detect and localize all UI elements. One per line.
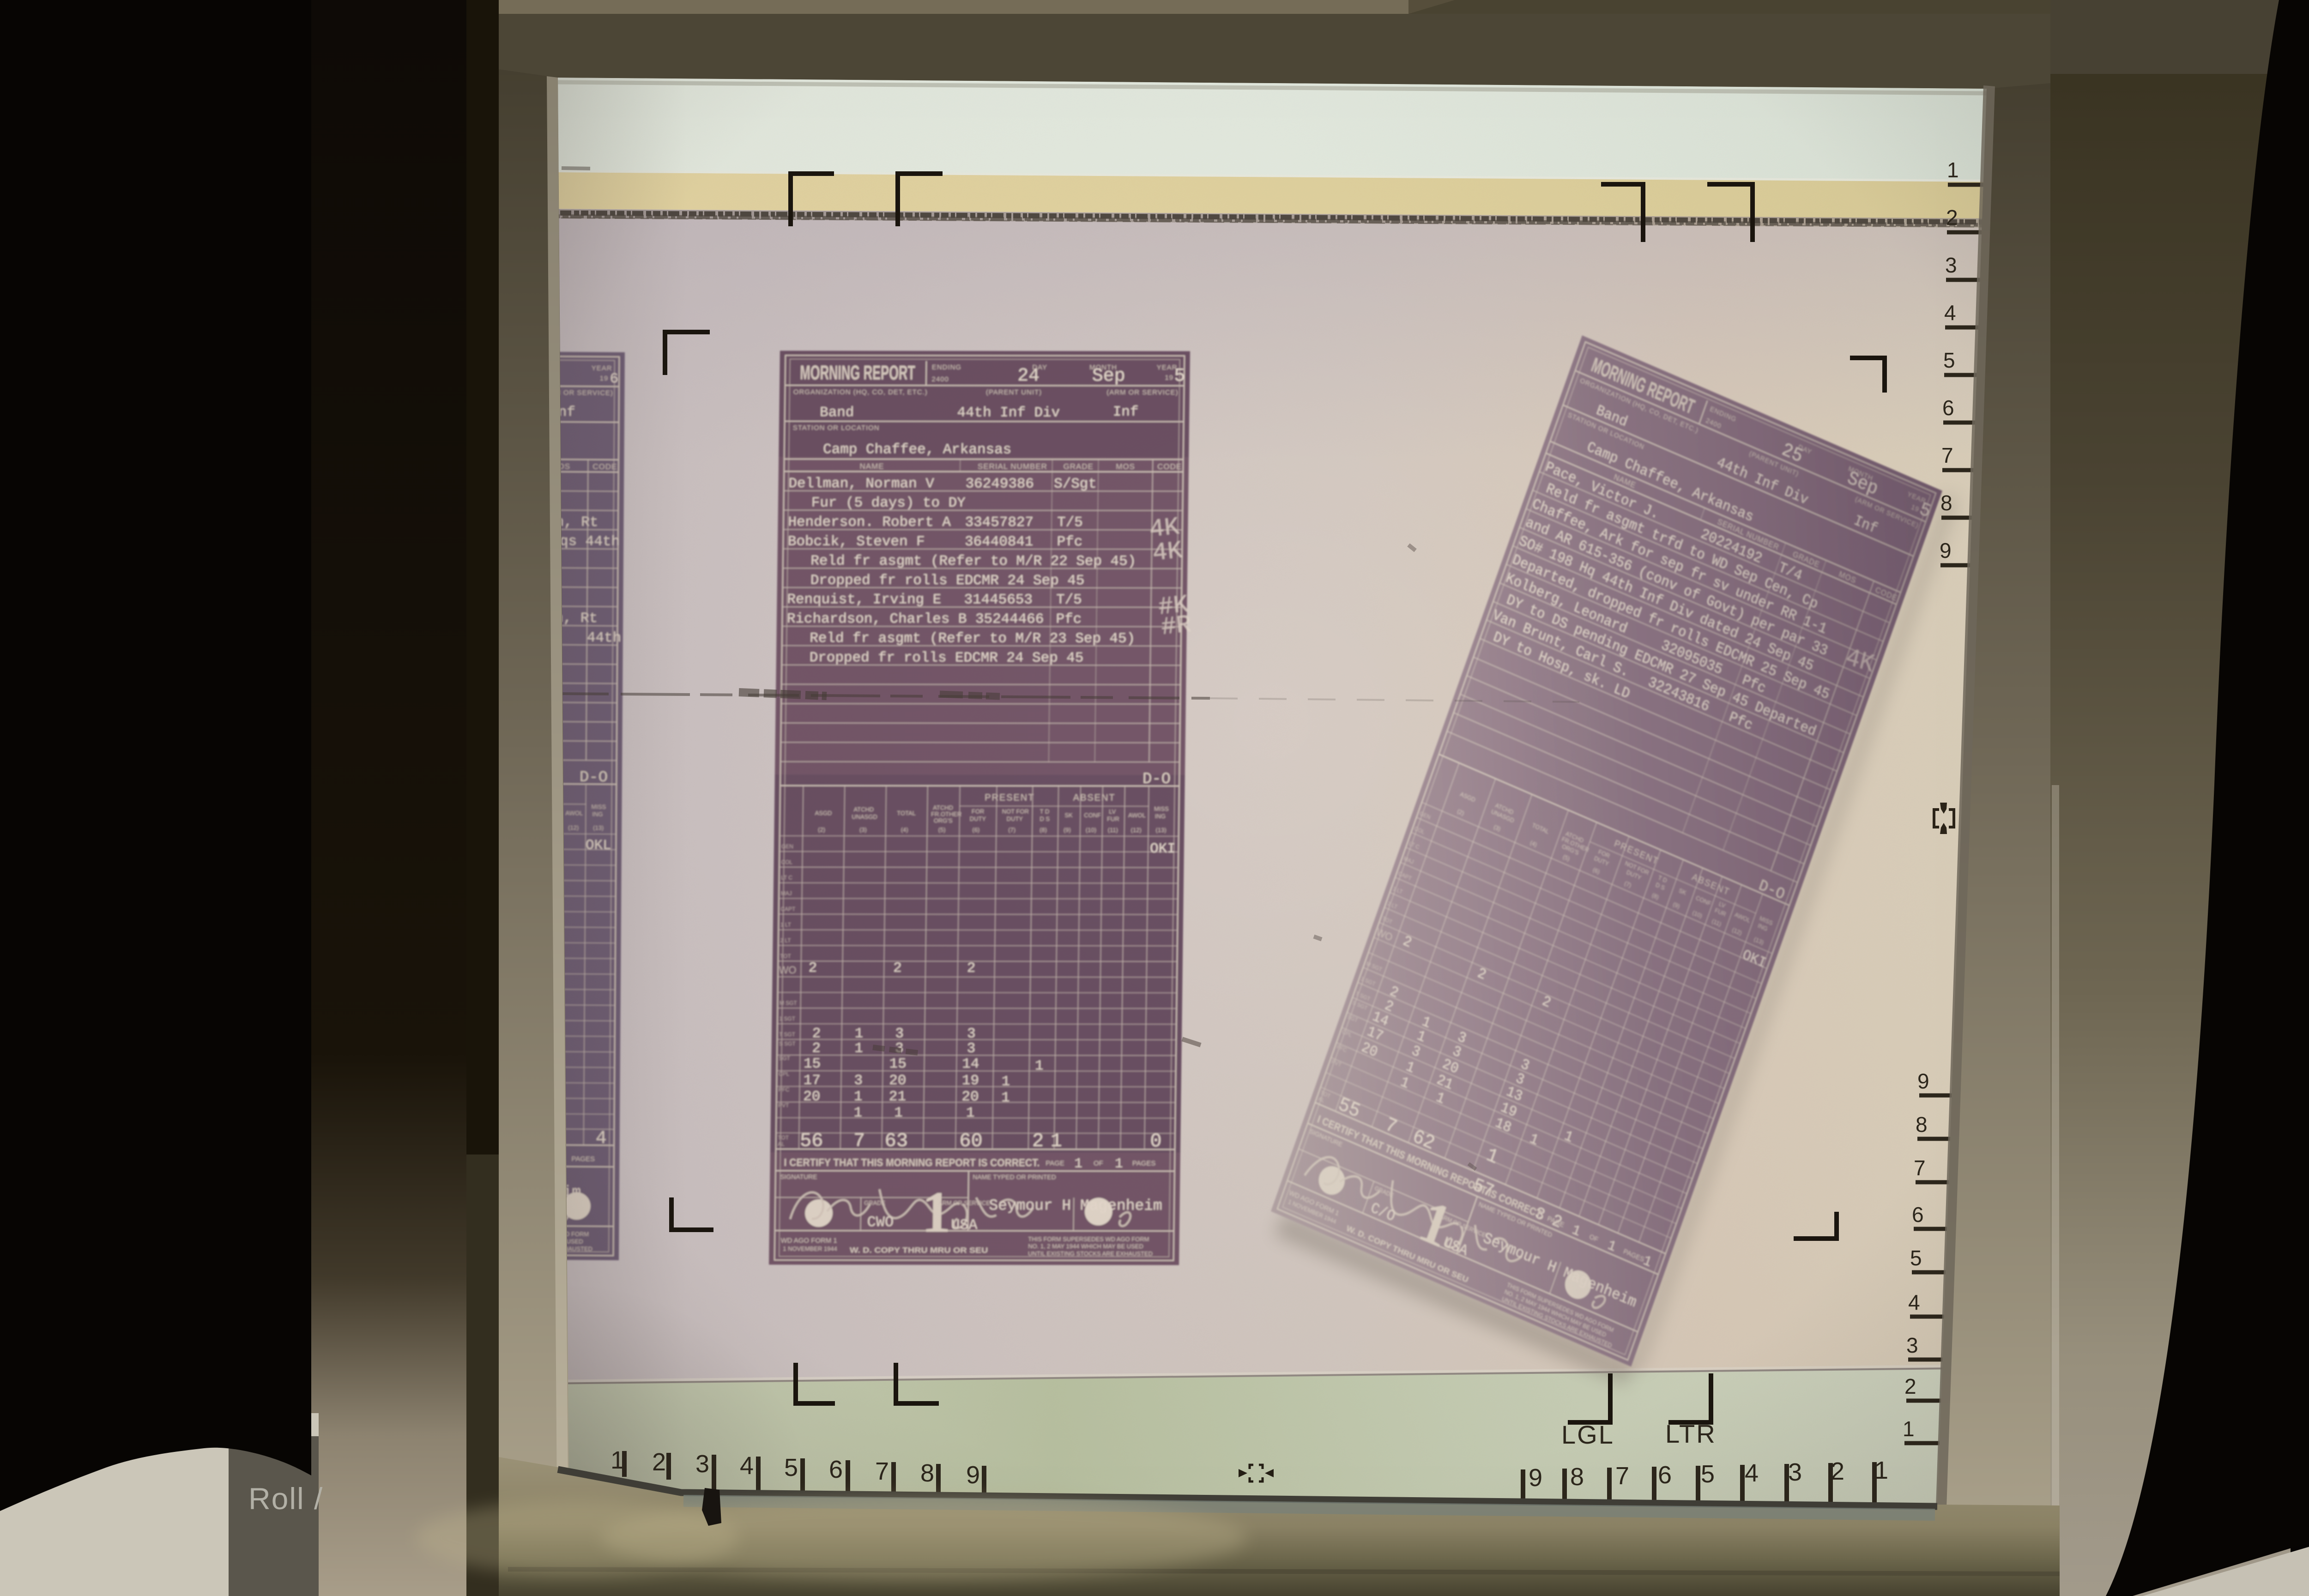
svg-text:Roll /: Roll /	[248, 1481, 323, 1516]
